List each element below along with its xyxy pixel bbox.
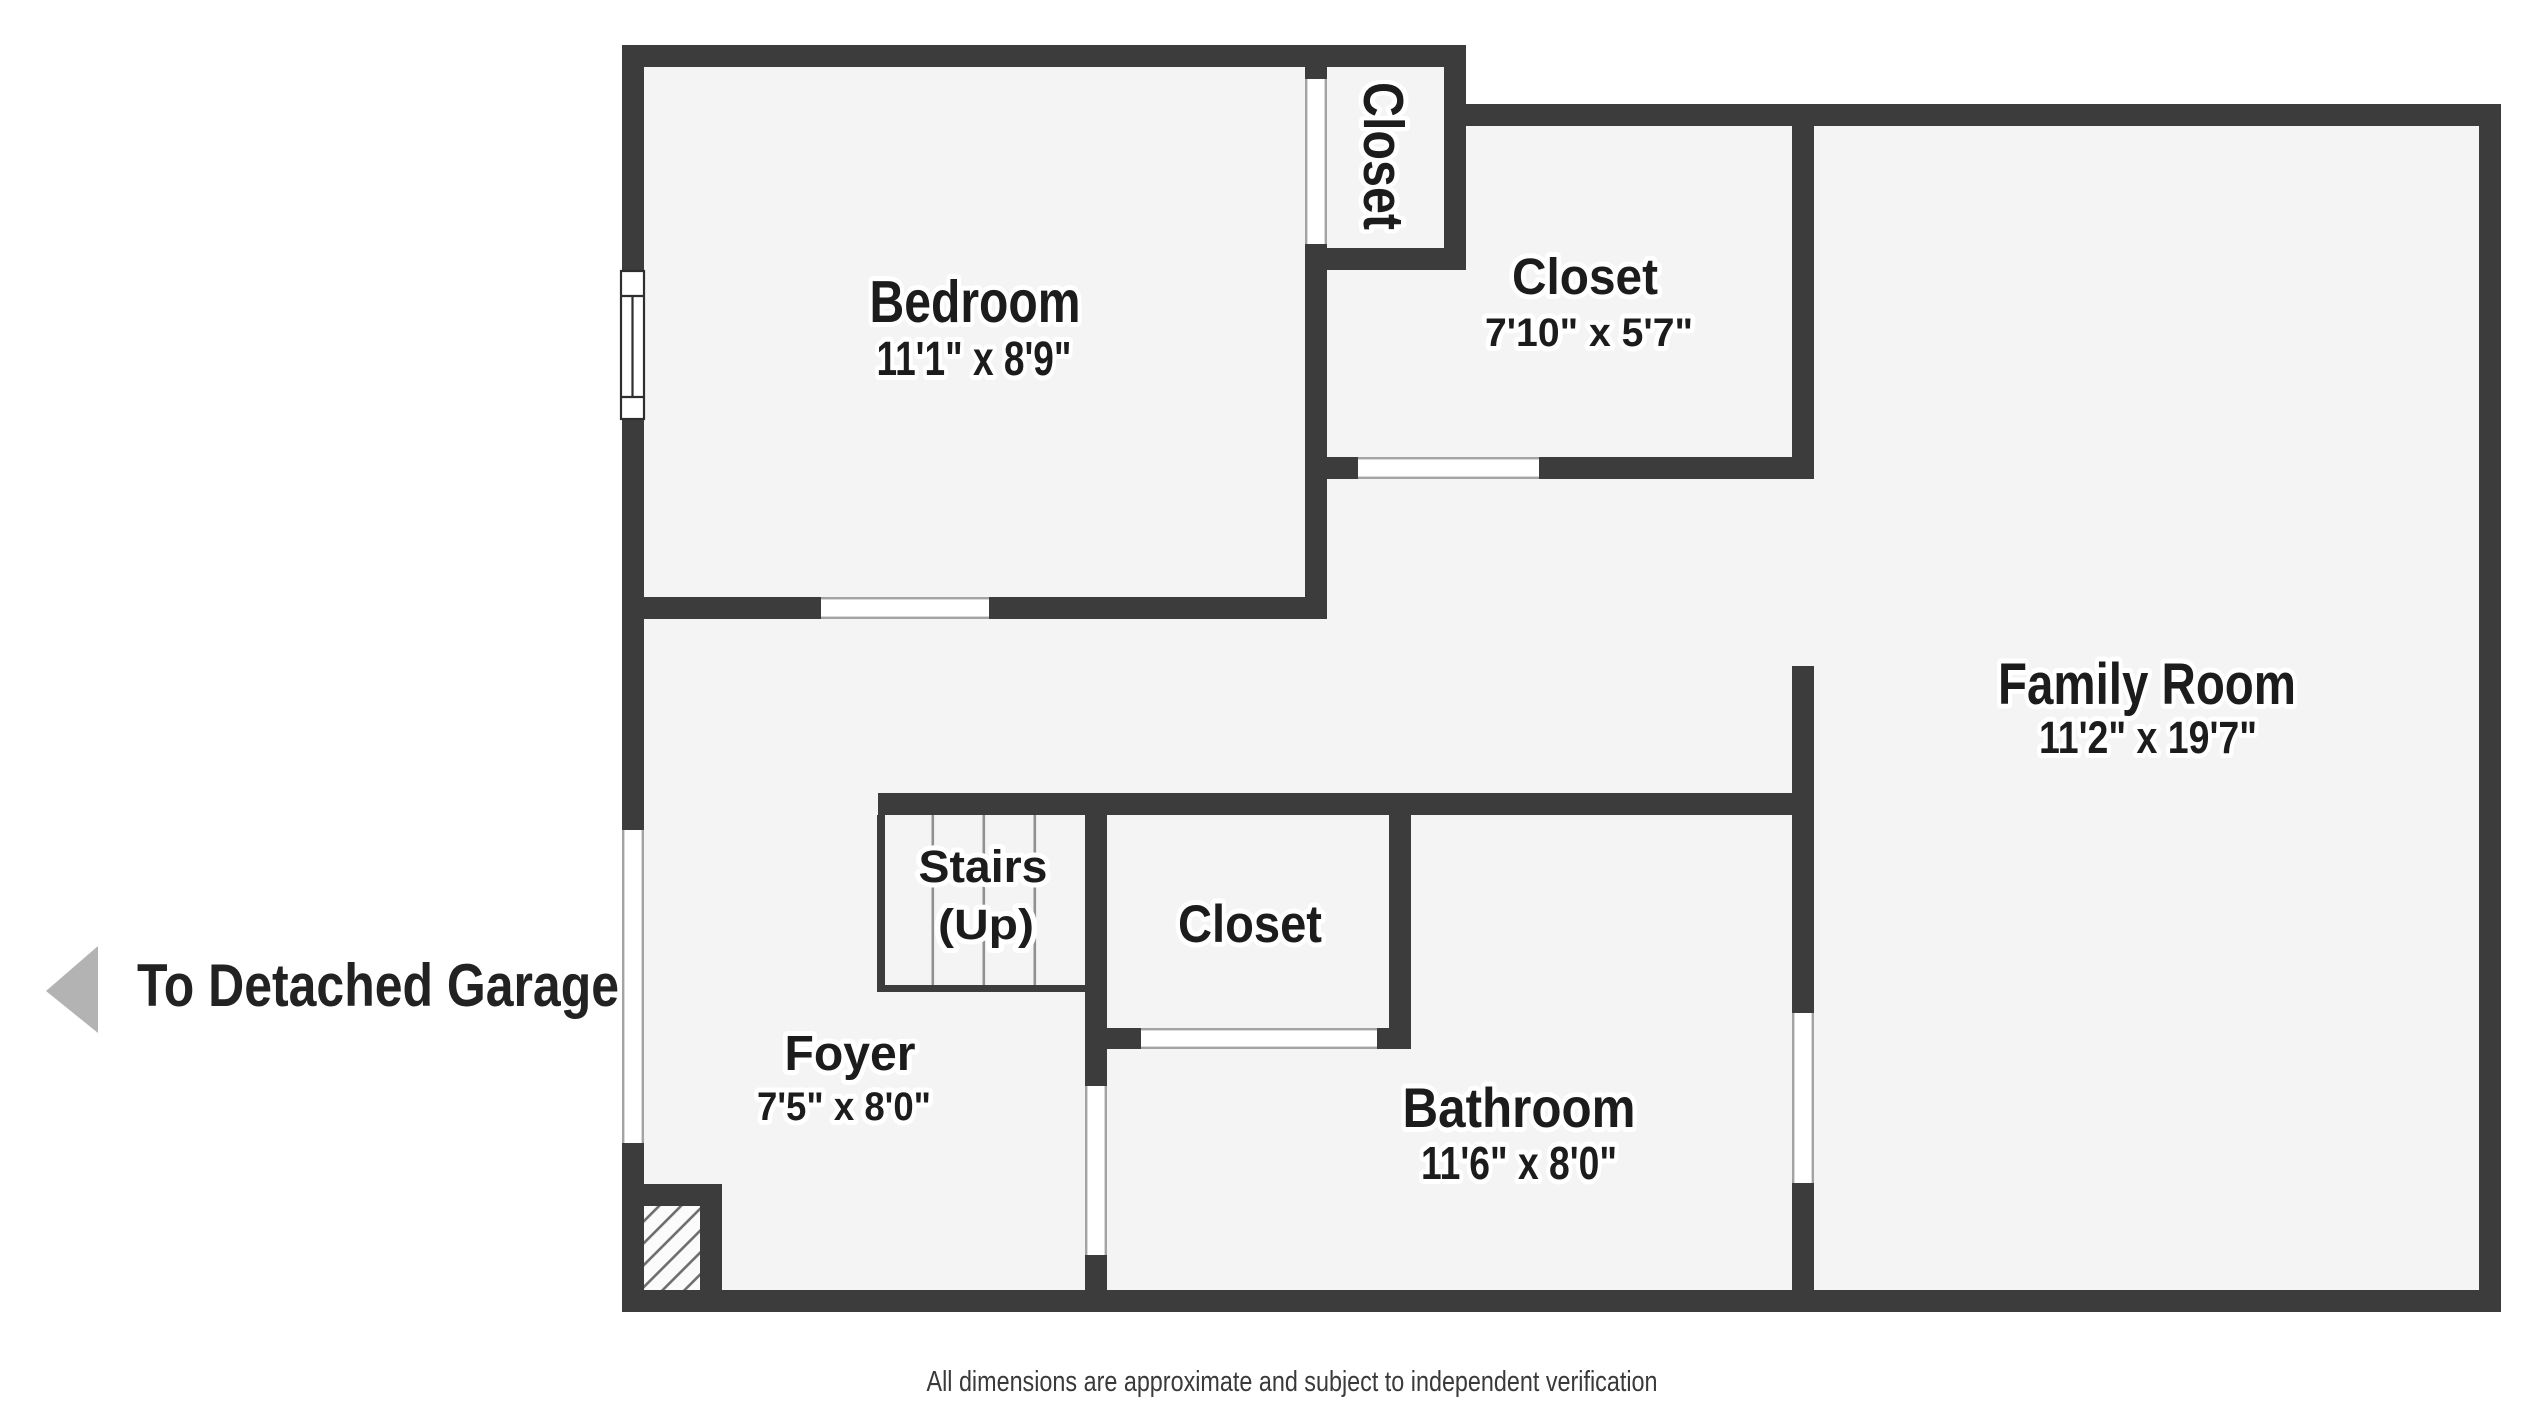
svg-text:Foyer: Foyer <box>785 1027 916 1081</box>
svg-text:Closet: Closet <box>1351 82 1415 230</box>
svg-text:Closet: Closet <box>1512 248 1658 305</box>
svg-text:11'1" x 8'9": 11'1" x 8'9" <box>877 333 1072 386</box>
svg-text:Family Room: Family Room <box>1998 652 2296 717</box>
svg-text:7'5" x 8'0": 7'5" x 8'0" <box>757 1085 931 1129</box>
svg-text:11'6" x 8'0": 11'6" x 8'0" <box>1421 1137 1617 1189</box>
svg-text:To Detached Garage: To Detached Garage <box>137 952 619 1019</box>
svg-text:7'10" x 5'7": 7'10" x 5'7" <box>1485 311 1693 355</box>
svg-text:11'2" x 19'7": 11'2" x 19'7" <box>2039 712 2257 763</box>
svg-text:Bedroom: Bedroom <box>870 269 1081 335</box>
svg-text:(Up): (Up) <box>938 901 1034 949</box>
svg-text:Closet: Closet <box>1178 895 1322 954</box>
svg-text:All dimensions are approximate: All dimensions are approximate and subje… <box>927 1366 1658 1398</box>
svg-text:Stairs: Stairs <box>919 841 1048 892</box>
svg-text:Bathroom: Bathroom <box>1403 1076 1636 1139</box>
